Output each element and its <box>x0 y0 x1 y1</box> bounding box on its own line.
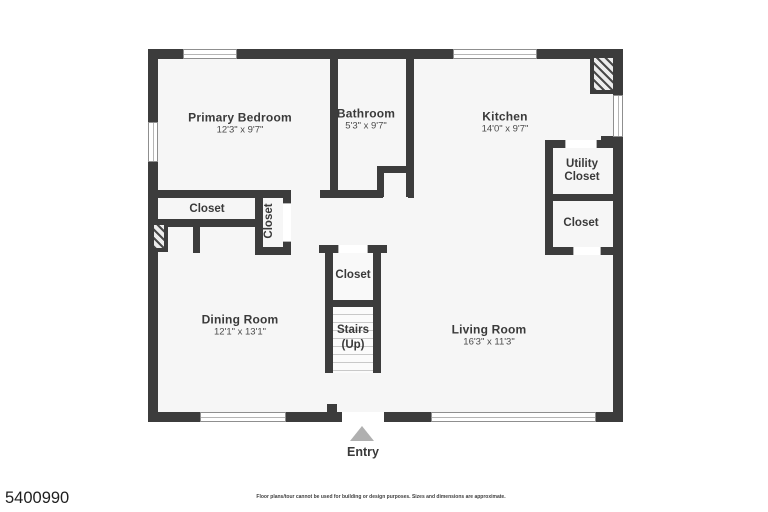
room-label-dining-room: Dining Room 12'1" x 13'1" <box>202 314 279 339</box>
listing-id: 5400990 <box>5 489 69 508</box>
label-stairs: Stairs <box>337 324 369 336</box>
window-bottom-dining <box>200 412 286 422</box>
room-dims: 12'1" x 13'1" <box>202 327 279 339</box>
label-closet-vertical: Closet <box>263 203 275 238</box>
wall-bathroom-notch-side <box>377 166 384 197</box>
wall-stairs-right <box>373 245 381 373</box>
room-dims: 14'0" x 9'7" <box>482 124 529 136</box>
room-label-bathroom: Bathroom 5'3" x 9'7" <box>337 108 395 133</box>
entry-door-gap <box>342 412 384 422</box>
wall-utility-divider <box>545 194 623 201</box>
room-dims: 5'3" x 9'7" <box>337 121 395 133</box>
chimney-left-icon <box>150 221 168 252</box>
chimney-right-icon <box>590 54 617 94</box>
wall-bathroom-bottom-left <box>320 190 383 198</box>
wall-closet-bottom <box>158 219 258 227</box>
disclaimer-text: Floor plans/tour cannot be used for buil… <box>256 494 505 500</box>
wall-right-stub <box>601 136 614 145</box>
wall-closet-bottom-left <box>545 247 573 255</box>
entry-arrow-icon <box>350 426 374 441</box>
wall-bathroom-kitchen <box>406 59 414 197</box>
label-closet-stairs: Closet <box>335 269 370 281</box>
label-closet-right: Closet <box>563 217 598 229</box>
window-top-kitchen <box>453 49 537 59</box>
window-left-bedroom <box>148 122 158 162</box>
wall-utility-top-left <box>545 140 565 148</box>
utility-door-opening <box>565 140 597 148</box>
wall-bedroom-bottom <box>158 190 289 198</box>
wall-bathroom-bottom-right <box>408 190 414 198</box>
label-utility-closet: Utility Closet <box>556 158 608 184</box>
wall-vcloset-right-botcap <box>283 242 291 255</box>
window-top-bedroom <box>183 49 237 59</box>
wall-partition-stub <box>193 227 200 253</box>
label-closet-bedroom: Closet <box>189 203 224 215</box>
room-name: Primary Bedroom <box>188 112 292 125</box>
room-label-primary-bedroom: Primary Bedroom 12'3" x 9'7" <box>188 112 292 137</box>
label-stairs-direction: (Up) <box>342 339 365 351</box>
vcloset-door-opening <box>283 203 291 242</box>
wall-closet-bottom-right <box>601 247 623 255</box>
room-name: Bathroom <box>337 108 395 121</box>
wall-vcloset-right-topcap <box>283 190 291 203</box>
wall-vclloset-left <box>255 190 263 255</box>
room-dims: 12'3" x 9'7" <box>188 125 292 137</box>
wall-stairs-topcap-left <box>319 245 338 253</box>
room-name: Living Room <box>452 324 527 337</box>
room-name: Dining Room <box>202 314 279 327</box>
room-dims: 16'3" x 11'3" <box>452 337 527 349</box>
room-label-kitchen: Kitchen 14'0" x 9'7" <box>482 111 529 136</box>
window-bottom-living <box>431 412 596 422</box>
wall-stairs-topcap-right <box>368 245 387 253</box>
stairs-closet-door-opening <box>338 245 368 253</box>
wall-stairs-divider <box>325 300 381 307</box>
wall-stairs-left <box>325 245 333 373</box>
room-label-living-room: Living Room 16'3" x 11'3" <box>452 324 527 349</box>
window-right-kitchen <box>613 95 623 137</box>
floor-plan-canvas: Primary Bedroom 12'3" x 9'7" Bathroom 5'… <box>0 0 768 512</box>
entry-door-jamb <box>327 404 337 412</box>
label-entry: Entry <box>347 445 379 459</box>
room-name: Kitchen <box>482 111 529 124</box>
right-closet-door-opening <box>573 247 601 255</box>
